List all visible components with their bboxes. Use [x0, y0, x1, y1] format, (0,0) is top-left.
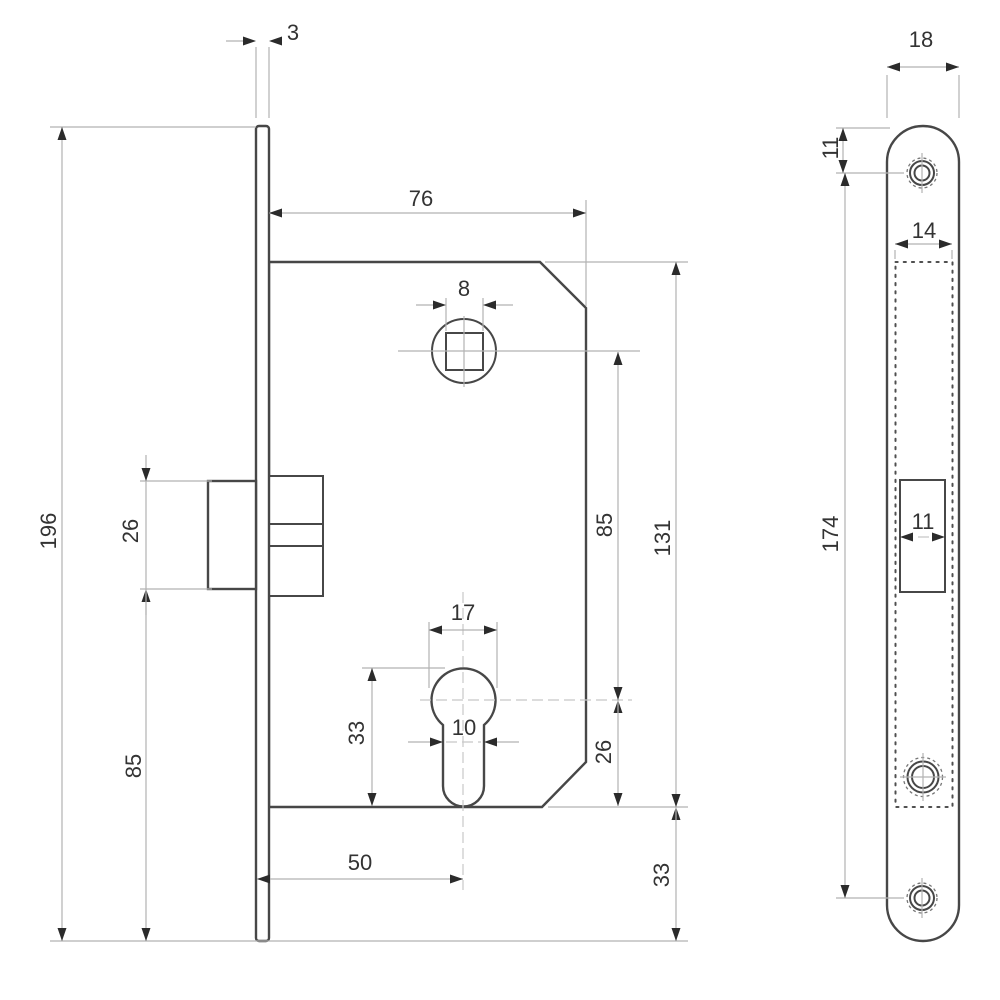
dim-case-depth-label: 76: [409, 186, 433, 211]
lock-technical-drawing: 3 76 8 196 26: [0, 0, 1000, 1000]
dim-screw-centers: 174: [818, 173, 850, 898]
dim-latch-height-label: 26: [118, 519, 143, 543]
dim-case-to-plate-bottom-label: 33: [649, 863, 674, 887]
dim-case-length-label: 131: [650, 520, 675, 557]
dim-plate-top-to-screw-label: 11: [818, 137, 843, 160]
dim-cylinder-diameter-label: 17: [451, 600, 475, 625]
dim-case-to-plate-bottom: 33: [649, 807, 681, 941]
dim-case-length: 131: [650, 262, 681, 820]
dim-cylinder-stem-width-label: 10: [452, 715, 476, 740]
dim-faceplate-length-label: 196: [36, 513, 61, 550]
dim-latch-to-plate-bottom: 85: [121, 589, 151, 941]
dim-cylinder-to-case-bottom-label: 26: [591, 740, 616, 764]
dim-cylinder-profile-height-label: 33: [344, 721, 369, 745]
faceplate-edge: [256, 126, 269, 941]
side-view: 3 76 8 196 26: [36, 20, 688, 941]
dim-plate-width: 18: [887, 27, 959, 72]
dim-mortise-width-label: 14: [912, 218, 936, 243]
dim-faceplate-length: 196: [36, 127, 67, 941]
dim-screw-centers-label: 174: [818, 516, 843, 553]
dim-plate-top-to-screw: 11: [818, 128, 848, 173]
latch-bolt-inner: [269, 476, 323, 596]
dim-case-depth: 76: [269, 186, 586, 218]
front-view: 18 11 14 174 11: [818, 27, 959, 941]
dim-spindle-square-label: 8: [458, 276, 470, 301]
dim-latch-width-label: 11: [912, 509, 935, 534]
dim-plate-width-label: 18: [909, 27, 933, 52]
lock-technical-drawing-page: 3 76 8 196 26: [0, 0, 1000, 1000]
dim-faceplate-thickness: 3: [226, 20, 299, 46]
dim-latch-to-plate-bottom-label: 85: [121, 754, 146, 778]
dim-backset: 50: [257, 850, 463, 884]
dim-faceplate-thickness-label: 3: [287, 20, 299, 45]
dim-backset-label: 50: [348, 850, 372, 875]
dim-spindle-to-cylinder: 85: [592, 352, 623, 713]
latch-bolt-head: [208, 481, 256, 589]
dim-cylinder-to-case-bottom: 26: [591, 700, 623, 806]
dim-spindle-to-cylinder-label: 85: [592, 513, 617, 537]
